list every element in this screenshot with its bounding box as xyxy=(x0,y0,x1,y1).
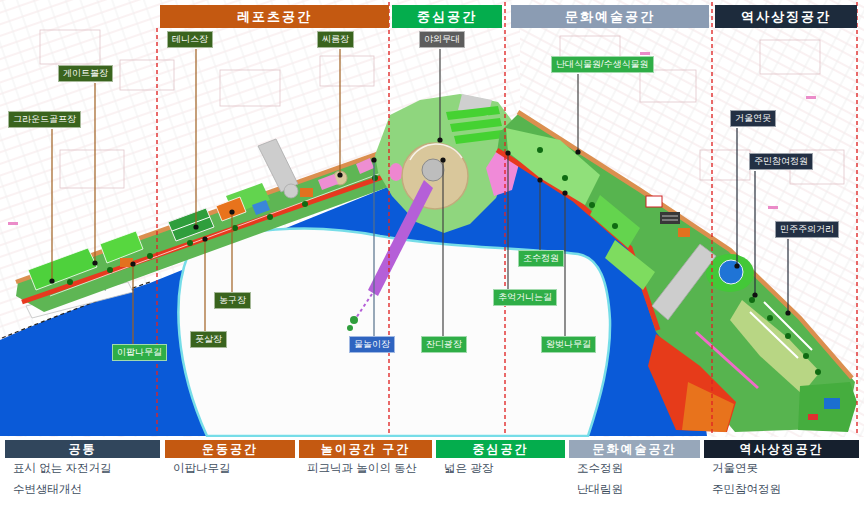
legend-section-play: 놀이공간 구간 피크닉과 놀이의 동산 xyxy=(299,440,432,479)
legend-item: 주민참여정원 xyxy=(704,479,859,500)
map-label-botanic-garden: 난대식물원/수생식물원 xyxy=(551,56,654,73)
map-label-tidal-garden: 조수정원 xyxy=(518,250,564,267)
map-label-mirror-pond: 거울연못 xyxy=(730,110,776,127)
map-label-ground-golf: 그라운드골프장 xyxy=(8,111,81,128)
legend-title-central: 중심공간 xyxy=(436,440,565,458)
legend-item: 표시 없는 자전거길 xyxy=(5,458,160,479)
legend-item: 수변생태개선 xyxy=(5,479,160,500)
legend-section-culture: 문화예술공간 조수정원 난대림원 xyxy=(569,440,700,500)
zone-header-central: 중심공간 xyxy=(392,5,502,28)
map-label-democracy-street: 민주주의거리 xyxy=(775,221,839,238)
legend-item: 거울연못 xyxy=(704,458,859,479)
legend-title-history: 역사상징공간 xyxy=(704,440,859,458)
legend-item: 난대림원 xyxy=(569,479,700,500)
legend-item: 피크닉과 놀이의 동산 xyxy=(299,458,432,479)
zone-header-culture-arts: 문화예술공간 xyxy=(511,5,709,28)
legend: 공통 표시 없는 자전거길 수변생태개선 운동공간 이팝나무길 놀이공간 구간 … xyxy=(0,437,864,510)
map-label-ssireum: 씨름장 xyxy=(317,31,354,48)
legend-section-common: 공통 표시 없는 자전거길 수변생태개선 xyxy=(5,440,160,500)
legend-section-central: 중심공간 넓은 광장 xyxy=(436,440,565,479)
map-label-tennis-court: 테니스장 xyxy=(167,31,213,48)
map-label-ipap-road: 이팝나무길 xyxy=(112,344,167,361)
legend-title-play: 놀이공간 구간 xyxy=(299,440,432,458)
stage-circle xyxy=(422,159,444,181)
map-label-outdoor-stage: 야외무대 xyxy=(419,31,465,48)
map-label-resident-garden: 주민참여정원 xyxy=(749,153,813,170)
legend-title-culture: 문화예술공간 xyxy=(569,440,700,458)
legend-title-common: 공통 xyxy=(5,440,160,458)
zone-header-leisure-sports: 레포츠공간 xyxy=(160,5,389,28)
legend-section-history: 역사상징공간 거울연못 주민참여정원 xyxy=(704,440,859,500)
map-label-basketball: 농구장 xyxy=(214,292,251,309)
zone-header-history-symbol: 역사상징공간 xyxy=(715,5,857,28)
waterfront-park-masterplan: 레포츠공간 중심공간 문화예술공간 역사상징공간 그라운드골프장 게이트볼장 테… xyxy=(0,0,864,510)
legend-item: 넓은 광장 xyxy=(436,458,565,479)
map-label-futsal: 풋살장 xyxy=(190,331,227,348)
masterplan-map xyxy=(0,0,864,437)
legend-item: 이팝나무길 xyxy=(165,458,295,479)
legend-item: 조수정원 xyxy=(569,458,700,479)
map-label-cherry-road: 왕벚나무길 xyxy=(541,336,596,353)
map-label-gateball: 게이트볼장 xyxy=(58,65,113,82)
legend-title-exercise: 운동공간 xyxy=(165,440,295,458)
map-label-memory-path: 추억거니는길 xyxy=(493,289,557,306)
map-label-water-play: 물놀이장 xyxy=(349,336,395,353)
map-label-lawn-plaza: 잔디광장 xyxy=(421,336,467,353)
legend-section-exercise: 운동공간 이팝나무길 xyxy=(165,440,295,479)
mirror-pond-circle xyxy=(719,260,743,284)
